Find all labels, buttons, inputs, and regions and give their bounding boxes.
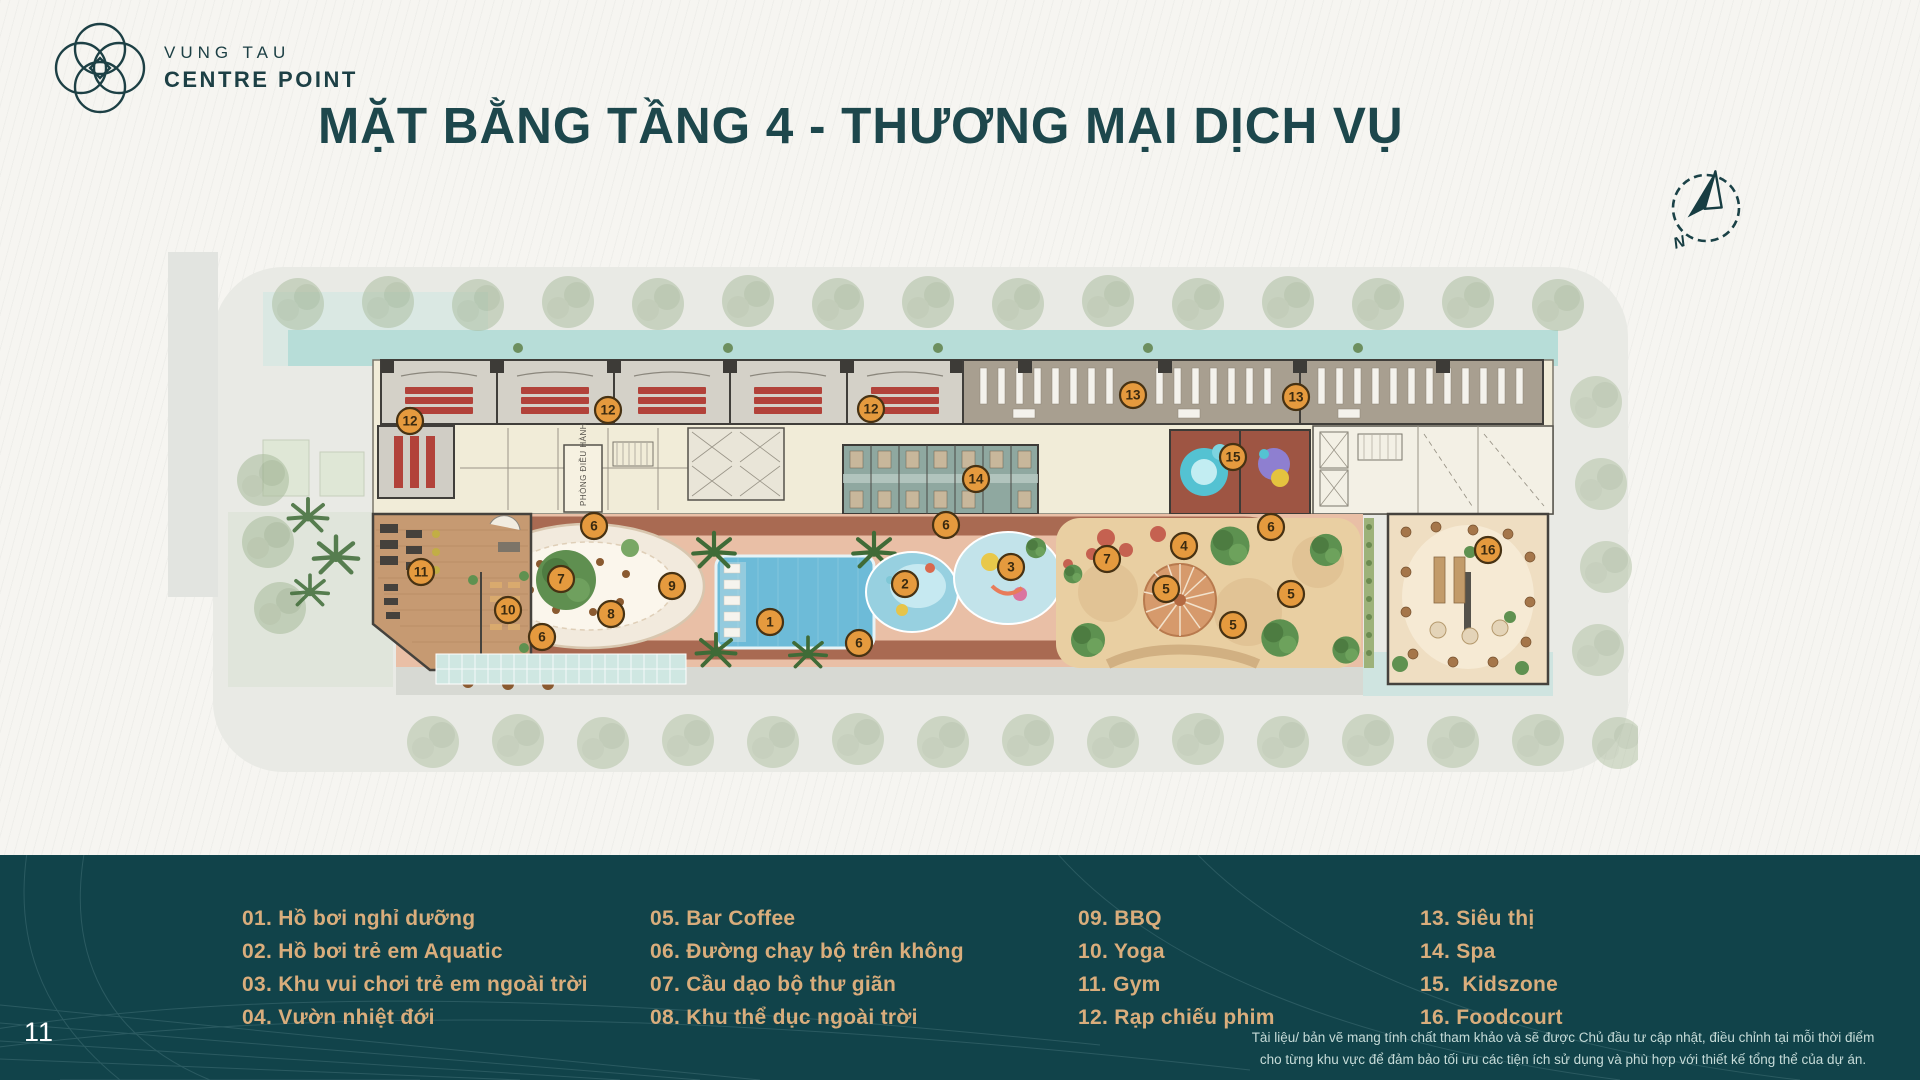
svg-text:13: 13 (1288, 390, 1304, 405)
svg-text:6: 6 (942, 518, 950, 533)
plan-marker-16: 16 (1475, 537, 1501, 563)
page-root: { "brand": { "name_line1": "VUNG TAU", "… (0, 0, 1920, 1080)
svg-text:15: 15 (1225, 450, 1241, 465)
hedge-strip (1364, 518, 1374, 668)
tile-terrace (436, 654, 686, 684)
svg-text:4: 4 (1180, 539, 1188, 554)
legend-column-4: 13. Siêu thị14. Spa15. Kidszone16. Foodc… (1420, 902, 1563, 1034)
svg-text:3: 3 (1007, 560, 1015, 575)
legend-item: 03. Khu vui chơi trẻ em ngoài trời (242, 968, 588, 1001)
brand-name-line2: CENTRE POINT (164, 67, 358, 93)
plan-marker-5: 5 (1153, 576, 1179, 602)
svg-text:14: 14 (968, 472, 984, 487)
legend-column-3: 09. BBQ10. Yoga11. Gym12. Rạp chiếu phim (1078, 902, 1275, 1034)
plan-marker-10: 10 (495, 597, 521, 623)
plan-marker-5: 5 (1278, 581, 1304, 607)
plan-marker-5: 5 (1220, 612, 1246, 638)
supermarket-zone (963, 360, 1543, 424)
kidszone (1170, 430, 1310, 514)
compass-north-label: N (1671, 233, 1688, 253)
svg-text:12: 12 (402, 414, 417, 429)
plan-marker-1: 1 (757, 609, 783, 635)
plan-marker-6: 6 (1258, 514, 1284, 540)
legend-item: 13. Siêu thị (1420, 902, 1563, 935)
brand-logo: VUNG TAU CENTRE POINT (48, 12, 358, 124)
foodcourt-zone (1388, 514, 1548, 684)
plan-marker-9: 9 (659, 573, 685, 599)
disclaimer-line-1: Tài liệu/ bản vẽ mang tính chất tham khả… (1228, 1027, 1898, 1049)
svg-text:6: 6 (590, 519, 598, 534)
legend-item: 10. Yoga (1078, 935, 1275, 968)
plan-marker-6: 6 (529, 624, 555, 650)
legend-item: 09. BBQ (1078, 902, 1275, 935)
tropical-garden (1056, 518, 1361, 668)
plan-marker-6: 6 (581, 513, 607, 539)
svg-text:5: 5 (1229, 618, 1237, 633)
legend-item: 05. Bar Coffee (650, 902, 964, 935)
plan-marker-12: 12 (595, 397, 621, 423)
legend-item: 02. Hồ bơi trẻ em Aquatic (242, 935, 588, 968)
svg-text:7: 7 (557, 572, 565, 587)
plan-marker-3: 3 (998, 554, 1024, 580)
plan-marker-8: 8 (598, 601, 624, 627)
page-number: 11 (24, 1017, 54, 1048)
legend-item: 14. Spa (1420, 935, 1563, 968)
disclaimer: Tài liệu/ bản vẽ mang tính chất tham khả… (1228, 1027, 1898, 1070)
tree-row-top (272, 275, 1584, 331)
plan-marker-14: 14 (963, 466, 989, 492)
svg-text:1: 1 (766, 615, 774, 630)
svg-text:12: 12 (863, 402, 878, 417)
legend-item: 11. Gym (1078, 968, 1275, 1001)
legend-item: 06. Đường chạy bộ trên không (650, 935, 964, 968)
svg-text:13: 13 (1125, 388, 1141, 403)
plan-marker-7: 7 (1094, 546, 1120, 572)
legend-item: 15. Kidszone (1420, 968, 1563, 1001)
svg-text:6: 6 (1267, 520, 1275, 535)
legend-item: 04. Vườn nhiệt đới (242, 1001, 588, 1034)
plan-marker-13: 13 (1283, 384, 1309, 410)
plan-marker-6: 6 (933, 512, 959, 538)
svg-text:12: 12 (600, 403, 615, 418)
logo-knot-icon (48, 12, 152, 124)
legend-item: 01. Hồ bơi nghỉ dưỡng (242, 902, 588, 935)
plan-marker-2: 2 (892, 571, 918, 597)
svg-text:7: 7 (1103, 552, 1111, 567)
plan-marker-6: 6 (846, 630, 872, 656)
svg-text:5: 5 (1287, 587, 1295, 602)
plan-marker-11: 11 (408, 559, 434, 585)
svg-text:5: 5 (1162, 582, 1170, 597)
elevator-core (688, 428, 784, 500)
svg-text:10: 10 (500, 603, 515, 618)
floor-plan-map: PHÒNG ĐIỀU HÀNH (168, 212, 1638, 787)
plan-marker-12: 12 (858, 396, 884, 422)
footer-legend-band: 01. Hồ bơi nghỉ dưỡng02. Hồ bơi trẻ em A… (0, 855, 1920, 1080)
svg-text:6: 6 (855, 636, 863, 651)
operations-room-label: PHÒNG ĐIỀU HÀNH (578, 423, 588, 506)
compass-icon: N (1652, 152, 1762, 272)
plan-marker-4: 4 (1171, 533, 1197, 559)
legend-column-1: 01. Hồ bơi nghỉ dưỡng02. Hồ bơi trẻ em A… (242, 902, 588, 1034)
right-core-rooms (1313, 426, 1553, 514)
svg-text:11: 11 (414, 565, 429, 580)
svg-text:6: 6 (538, 630, 546, 645)
plan-marker-7: 7 (548, 566, 574, 592)
disclaimer-line-2: cho từng khu vực để đảm bảo tối ưu các t… (1228, 1049, 1898, 1071)
svg-text:16: 16 (1480, 543, 1496, 558)
plan-marker-12: 12 (397, 408, 423, 434)
spa-zone (843, 445, 1038, 514)
legend-item: 08. Khu thể dục ngoài trời (650, 1001, 964, 1034)
plan-marker-15: 15 (1220, 444, 1246, 470)
page-title: MẶT BẰNG TẦNG 4 - THƯƠNG MẠI DỊCH VỤ (318, 96, 1404, 155)
svg-text:8: 8 (607, 607, 615, 622)
brand-name-line1: VUNG TAU (164, 43, 358, 63)
legend-item: 07. Cầu dạo bộ thư giãn (650, 968, 964, 1001)
legend-column-2: 05. Bar Coffee06. Đường chạy bộ trên khô… (650, 902, 964, 1034)
svg-text:2: 2 (901, 577, 909, 592)
tree-row-bottom (407, 713, 1638, 769)
svg-text:9: 9 (668, 579, 676, 594)
plan-marker-13: 13 (1120, 382, 1146, 408)
